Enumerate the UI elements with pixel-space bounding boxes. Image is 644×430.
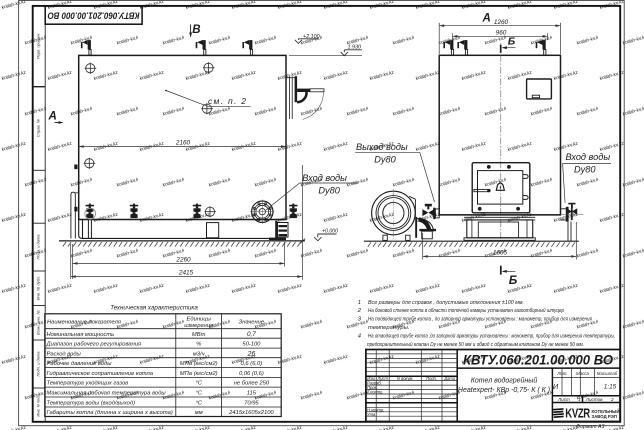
- svg-text:измерения: измерения: [184, 323, 213, 329]
- svg-text:°С: °С: [195, 400, 202, 406]
- svg-text:предохранительный клапан Dу н: предохранительный клапан Dу не менее 50 …: [367, 341, 584, 348]
- svg-text:Лист: Лист: [557, 397, 570, 402]
- svg-text:И: И: [553, 382, 559, 391]
- svg-text:Dy80: Dy80: [318, 186, 340, 196]
- svg-text:м3/ч: м3/ч: [193, 351, 205, 357]
- svg-text:°С: °С: [195, 391, 202, 397]
- svg-text:Котел водогрейный: Котел водогрейный: [471, 376, 538, 384]
- svg-text:0,7: 0,7: [247, 331, 256, 338]
- svg-text:Лит.: Лит.: [556, 371, 567, 376]
- svg-text:Температура воды (вход/выход): Температура воды (вход/выход): [47, 400, 136, 406]
- svg-text:50-100: 50-100: [242, 342, 261, 348]
- svg-text:А: А: [482, 13, 491, 25]
- svg-text:Утв.: Утв.: [367, 412, 376, 417]
- svg-text:1: 1: [578, 397, 581, 402]
- svg-text:Масса: Масса: [576, 371, 590, 376]
- svg-text:Подп. и дата: Подп. и дата: [36, 234, 41, 260]
- svg-text:1605: 1605: [493, 249, 508, 256]
- svg-text:1: 1: [358, 300, 361, 306]
- svg-text:°С: °С: [195, 381, 202, 387]
- svg-text:Вход воды: Вход воды: [302, 173, 347, 183]
- svg-text:+0.000: +0.000: [322, 228, 338, 234]
- svg-text:Единицы: Единицы: [187, 316, 212, 322]
- svg-text:N докум.: N докум.: [397, 376, 414, 381]
- svg-text:Формат А3: Формат А3: [576, 424, 604, 430]
- svg-text:КВТУ.060.201.00.000 ВО: КВТУ.060.201.00.000 ВО: [47, 10, 139, 21]
- svg-text:Дата: Дата: [443, 376, 456, 381]
- svg-text:В: В: [192, 24, 200, 36]
- svg-text:Инв. N подл.: Инв. N подл.: [36, 393, 41, 416]
- svg-text:1:15: 1:15: [604, 384, 617, 391]
- svg-text:Вход воды: Вход воды: [566, 152, 611, 162]
- svg-text:Расход воды: Расход воды: [47, 351, 82, 357]
- svg-text:2260: 2260: [175, 256, 191, 263]
- svg-text:2: 2: [610, 397, 614, 402]
- svg-text:Диапазон рабочего регулировани: Диапазон рабочего регулирования: [46, 342, 142, 348]
- svg-text:KVZR: KVZR: [565, 406, 590, 421]
- svg-text:0,6 (6,0): 0,6 (6,0): [241, 361, 263, 367]
- svg-text:Номинальная мощность: Номинальная мощность: [47, 332, 115, 338]
- svg-text:960: 960: [496, 29, 507, 36]
- svg-text:не более 250: не более 250: [234, 381, 270, 387]
- svg-text:Инв. № дубл.: Инв. № дубл.: [36, 276, 41, 301]
- svg-text:мм: мм: [195, 410, 203, 416]
- svg-text:ЗАВОД РЭП: ЗАВОД РЭП: [592, 414, 617, 419]
- svg-text:Гидравлическое сопративление к: Гидравлическое сопративление котла: [47, 371, 154, 377]
- svg-text:Листов: Листов: [585, 397, 603, 402]
- svg-text:70/95: 70/95: [244, 400, 259, 406]
- svg-text:МПа (кгс/см2): МПа (кгс/см2): [180, 361, 218, 367]
- svg-text:2160: 2160: [175, 140, 191, 147]
- svg-text:0,06 (0,6): 0,06 (0,6): [239, 371, 264, 377]
- svg-text:Масштаб: Масштаб: [597, 371, 618, 376]
- svg-text:4: 4: [358, 333, 361, 339]
- svg-text:Максимальная рабочая температу: Максимальная рабочая температура воды: [47, 391, 167, 397]
- svg-text:Heatexpert- КВр -0,75- К ( К ): Heatexpert- КВр -0,75- К ( К ): [458, 387, 550, 394]
- svg-text:1.930: 1.930: [348, 45, 362, 51]
- svg-text:Выход воды: Выход воды: [356, 142, 408, 152]
- svg-text:см. п. 2: см. п. 2: [208, 96, 247, 106]
- svg-text:115: 115: [247, 391, 257, 397]
- svg-text:Рабочее давление воды: Рабочее давление воды: [47, 361, 113, 367]
- svg-text:+2.100: +2.100: [303, 34, 320, 40]
- svg-text:26: 26: [247, 351, 256, 358]
- svg-text:На подводящей трубе котла ,: На подводящей трубе котла , до запорной …: [368, 316, 592, 323]
- svg-text:Справ. №: Справ. №: [36, 118, 41, 137]
- svg-text:2415: 2415: [178, 269, 194, 276]
- svg-text:Значение: Значение: [239, 320, 265, 326]
- svg-text:Подп. и дата: Подп. и дата: [36, 351, 41, 377]
- svg-text:Б: Б: [509, 273, 518, 287]
- svg-text:Габариты котла (длинна х ширин: Габариты котла (длинна х ширина х высота…: [47, 410, 173, 416]
- svg-text:2415х1605х2100: 2415х1605х2100: [228, 410, 274, 416]
- svg-text:Dy80: Dy80: [374, 155, 396, 165]
- svg-text:На отводящей трубе котла ,до з: На отводящей трубе котла ,до запорной ар…: [368, 332, 615, 339]
- svg-text:Техническая характеристика: Техническая характеристика: [110, 304, 198, 311]
- svg-text:%: %: [196, 342, 201, 348]
- svg-text:Б: Б: [508, 36, 516, 48]
- svg-text:Подп.: Подп.: [426, 376, 437, 381]
- svg-text:МПа (кгс/см2): МПа (кгс/см2): [180, 371, 218, 377]
- svg-text:Взам. инв. №: Взам. инв. №: [36, 309, 41, 334]
- svg-text:На боковой стенке котла в обла: На боковой стенке котла в области топочн…: [368, 307, 565, 314]
- svg-text:Температура уходящих газов: Температура уходящих газов: [47, 381, 129, 387]
- svg-text:А: А: [48, 111, 57, 123]
- svg-text:Наименование показателя: Наименование показателя: [47, 320, 121, 326]
- svg-text:Все размеры для справок , допу: Все размеры для справок , допустимые отк…: [368, 300, 524, 306]
- svg-text:Перв. примен.: Перв. примен.: [36, 33, 41, 60]
- svg-text:1260: 1260: [494, 19, 509, 26]
- svg-text:КВТУ.060.201.00.000 ВО: КВТУ.060.201.00.000 ВО: [463, 352, 614, 367]
- svg-text:Dy80: Dy80: [574, 165, 596, 175]
- svg-text:температуры.: температуры.: [368, 325, 410, 331]
- svg-text:Т.контр.: Т.контр.: [367, 390, 384, 395]
- svg-text:МВт: МВт: [192, 332, 206, 338]
